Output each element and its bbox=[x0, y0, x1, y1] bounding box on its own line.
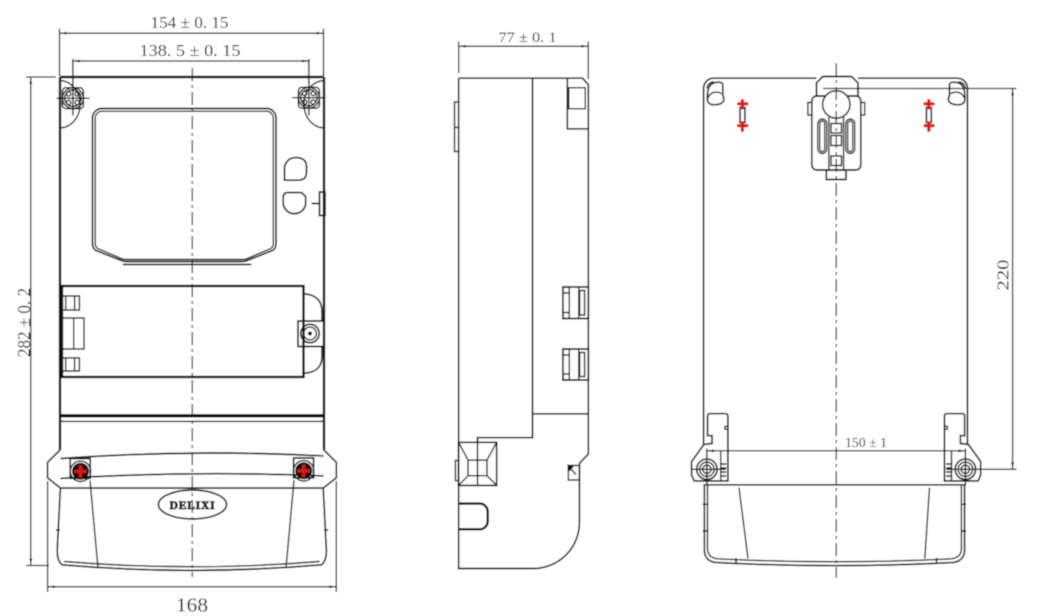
svg-text:282 ± 0. 2: 282 ± 0. 2 bbox=[14, 288, 34, 357]
svg-text:77 ± 0. 1: 77 ± 0. 1 bbox=[499, 30, 557, 46]
svg-text:150 ± 1: 150 ± 1 bbox=[845, 435, 887, 450]
svg-text:220: 220 bbox=[994, 260, 1013, 291]
svg-text:168: 168 bbox=[176, 595, 208, 616]
svg-text:138. 5 ± 0. 15: 138. 5 ± 0. 15 bbox=[140, 41, 241, 60]
svg-text:154 ± 0. 15: 154 ± 0. 15 bbox=[151, 13, 229, 32]
